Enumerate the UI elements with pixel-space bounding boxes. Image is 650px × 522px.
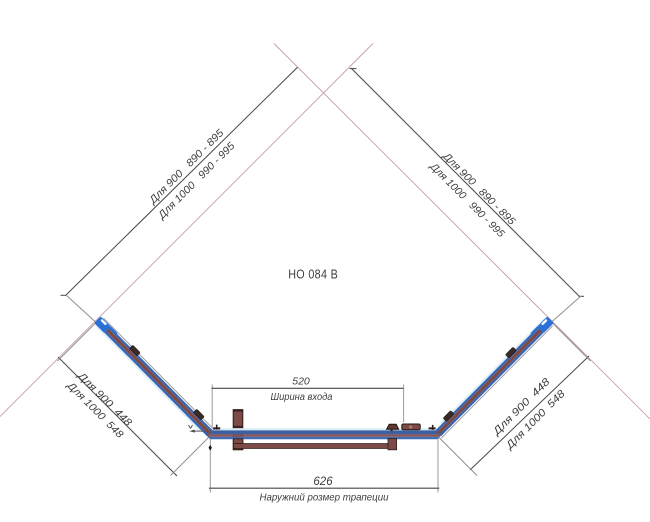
svg-text:HO 084 B: HO 084 B (288, 266, 338, 281)
svg-text:Наружний розмер трапеции: Наружний розмер трапеции (260, 491, 389, 503)
svg-text:626: 626 (313, 476, 333, 488)
svg-text:520: 520 (292, 376, 310, 388)
svg-text:Ширина входа: Ширина входа (271, 391, 333, 403)
